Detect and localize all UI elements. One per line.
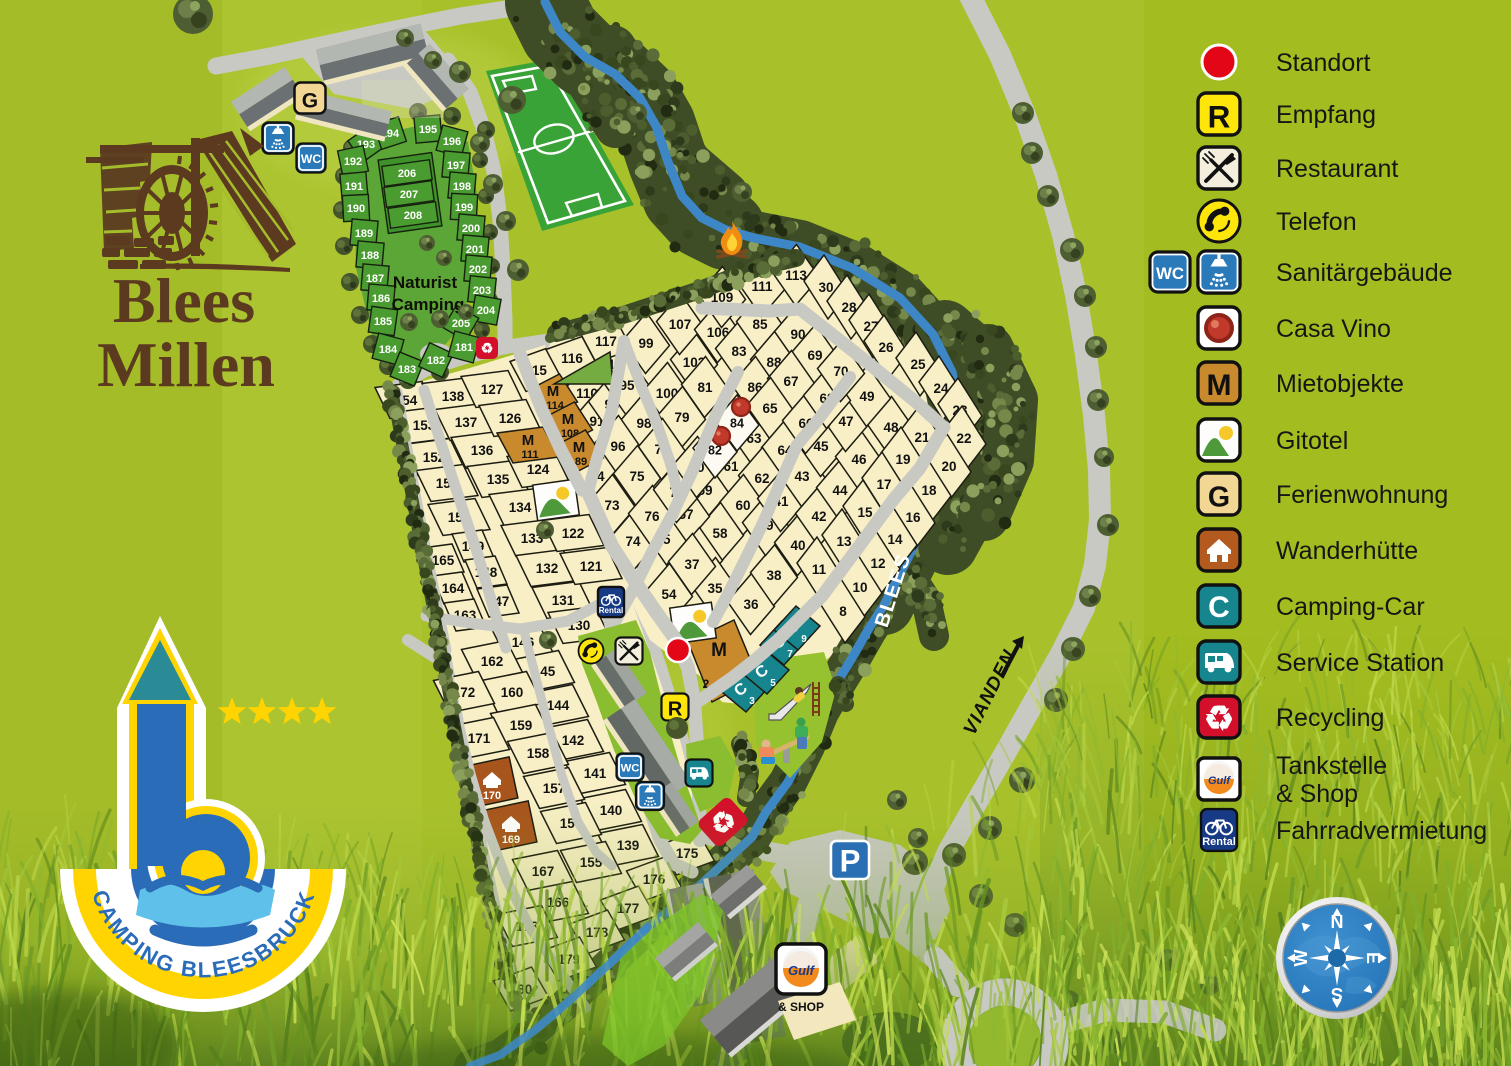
svg-text:111: 111	[751, 279, 773, 294]
svg-text:R: R	[1208, 98, 1231, 134]
svg-text:65: 65	[762, 401, 778, 416]
svg-text:43: 43	[794, 469, 810, 484]
svg-text:73: 73	[604, 498, 620, 513]
svg-text:E: E	[1363, 952, 1383, 964]
svg-text:Sanitärgebäude: Sanitärgebäude	[1276, 259, 1453, 287]
svg-text:3: 3	[749, 696, 755, 707]
svg-text:M: M	[562, 411, 575, 428]
svg-text:117: 117	[595, 334, 617, 349]
svg-text:WC: WC	[1156, 264, 1184, 283]
svg-text:159: 159	[510, 718, 533, 733]
svg-text:M: M	[1207, 369, 1232, 402]
svg-text:81: 81	[697, 380, 713, 395]
svg-text:♻: ♻	[1204, 700, 1234, 738]
svg-text:134: 134	[509, 500, 532, 515]
svg-text:47: 47	[838, 414, 853, 429]
svg-text:144: 144	[547, 698, 570, 713]
svg-text:62: 62	[754, 471, 769, 486]
svg-text:Standort: Standort	[1276, 49, 1371, 77]
svg-text:58: 58	[712, 526, 728, 541]
svg-text:198: 198	[453, 181, 471, 193]
svg-text:Blees: Blees	[113, 265, 255, 336]
svg-text:141: 141	[584, 766, 607, 781]
svg-text:Empfang: Empfang	[1276, 101, 1376, 129]
svg-text:G: G	[302, 89, 318, 112]
svg-text:74: 74	[625, 534, 641, 549]
svg-text:30: 30	[818, 280, 833, 295]
svg-text:137: 137	[455, 415, 478, 430]
svg-text:107: 107	[669, 317, 692, 332]
svg-text:35: 35	[707, 581, 723, 596]
svg-text:127: 127	[481, 382, 504, 397]
svg-text:Recycling: Recycling	[1276, 704, 1384, 732]
svg-text:199: 199	[455, 202, 473, 214]
svg-text:171: 171	[468, 731, 491, 746]
svg-text:Service Station: Service Station	[1276, 649, 1444, 677]
svg-text:131: 131	[552, 593, 575, 608]
svg-text:14: 14	[887, 532, 903, 547]
svg-text:12: 12	[870, 556, 885, 571]
svg-text:37: 37	[684, 557, 699, 572]
svg-text:196: 196	[443, 136, 461, 148]
svg-text:M: M	[522, 432, 535, 449]
svg-text:W: W	[1291, 950, 1311, 967]
svg-text:Gulf: Gulf	[1208, 775, 1231, 787]
svg-text:25: 25	[910, 357, 926, 372]
svg-text:15: 15	[857, 505, 873, 520]
svg-text:G: G	[1208, 482, 1230, 514]
svg-text:195: 195	[419, 124, 437, 136]
svg-text:P: P	[840, 843, 861, 878]
svg-text:Wanderhütte: Wanderhütte	[1276, 537, 1418, 565]
svg-text:136: 136	[471, 443, 494, 458]
svg-text:Fahrradvermietung: Fahrradvermietung	[1276, 817, 1487, 845]
svg-text:185: 185	[374, 316, 392, 328]
svg-text:83: 83	[731, 344, 747, 359]
svg-text:49: 49	[859, 389, 874, 404]
svg-text:111: 111	[521, 449, 538, 461]
svg-text:142: 142	[562, 733, 585, 748]
svg-text:181: 181	[455, 342, 473, 354]
svg-text:190: 190	[347, 203, 365, 215]
svg-text:158: 158	[527, 746, 550, 761]
svg-text:Telefon: Telefon	[1276, 208, 1357, 236]
svg-text:122: 122	[562, 526, 585, 541]
svg-text:197: 197	[447, 160, 465, 172]
svg-text:124: 124	[527, 462, 550, 477]
svg-text:126: 126	[499, 411, 522, 426]
svg-text:M: M	[573, 439, 586, 456]
svg-text:60: 60	[735, 498, 750, 513]
svg-text:192: 192	[344, 156, 362, 168]
svg-text:10: 10	[852, 580, 867, 595]
svg-text:18: 18	[921, 483, 937, 498]
svg-text:C: C	[1208, 591, 1230, 624]
svg-text:17: 17	[876, 477, 891, 492]
svg-text:121: 121	[580, 559, 603, 574]
svg-text:191: 191	[345, 181, 363, 193]
svg-text:20: 20	[941, 459, 956, 474]
svg-text:Rental: Rental	[599, 606, 623, 615]
svg-text:M: M	[547, 383, 560, 400]
svg-text:5: 5	[770, 678, 776, 689]
svg-text:Gulf: Gulf	[788, 963, 816, 978]
svg-text:Naturist: Naturist	[393, 273, 458, 292]
svg-text:79: 79	[674, 410, 689, 425]
svg-text:99: 99	[638, 336, 653, 351]
svg-text:♻: ♻	[481, 340, 494, 356]
svg-text:54: 54	[661, 587, 677, 602]
svg-text:Restaurant: Restaurant	[1276, 155, 1398, 183]
svg-text:76: 76	[644, 509, 660, 524]
svg-text:186: 186	[372, 293, 390, 305]
svg-text:19: 19	[895, 452, 910, 467]
svg-text:200: 200	[462, 223, 480, 235]
svg-text:26: 26	[878, 340, 894, 355]
svg-text:WC: WC	[301, 152, 321, 166]
svg-text:204: 204	[477, 305, 496, 317]
svg-text:40: 40	[790, 538, 805, 553]
svg-text:Mietobjekte: Mietobjekte	[1276, 370, 1404, 398]
svg-text:22: 22	[956, 431, 971, 446]
svg-text:7: 7	[787, 649, 793, 660]
svg-text:189: 189	[355, 228, 373, 240]
svg-text:9: 9	[801, 634, 807, 645]
svg-text:160: 160	[501, 685, 524, 700]
svg-text:Gitotel: Gitotel	[1276, 427, 1348, 455]
svg-text:188: 188	[361, 250, 379, 262]
svg-text:162: 162	[481, 654, 504, 669]
svg-text:85: 85	[752, 317, 768, 332]
svg-text:202: 202	[469, 264, 487, 276]
svg-text:Casa Vino: Casa Vino	[1276, 315, 1391, 343]
svg-text:36: 36	[743, 597, 759, 612]
svg-text:84: 84	[730, 417, 744, 431]
svg-text:96: 96	[610, 439, 626, 454]
svg-text:11: 11	[812, 562, 827, 577]
svg-text:208: 208	[404, 210, 422, 222]
svg-text:M: M	[711, 640, 727, 661]
svg-text:183: 183	[398, 364, 416, 376]
svg-text:164: 164	[442, 581, 465, 596]
svg-text:Camping-Car: Camping-Car	[1276, 593, 1425, 621]
svg-text:Tankstelle: Tankstelle	[1276, 752, 1387, 780]
svg-text:38: 38	[766, 568, 782, 583]
svg-text:& Shop: & Shop	[1276, 780, 1358, 808]
svg-text:13: 13	[836, 534, 852, 549]
svg-text:Camping: Camping	[392, 295, 465, 314]
svg-text:165: 165	[432, 553, 455, 568]
svg-text:Ferienwohnung: Ferienwohnung	[1276, 481, 1448, 509]
svg-text:46: 46	[851, 452, 867, 467]
svg-text:69: 69	[807, 348, 822, 363]
svg-text:& SHOP: & SHOP	[778, 1000, 824, 1014]
svg-text:207: 207	[400, 189, 418, 201]
svg-text:201: 201	[466, 244, 484, 256]
svg-text:Millen: Millen	[97, 329, 275, 400]
svg-text:132: 132	[536, 561, 559, 576]
svg-text:135: 135	[487, 472, 510, 487]
svg-text:75: 75	[629, 469, 645, 484]
svg-text:WC: WC	[621, 763, 640, 775]
svg-text:N: N	[1331, 912, 1344, 932]
svg-text:Rental: Rental	[1202, 836, 1236, 848]
svg-text:182: 182	[427, 355, 445, 367]
svg-text:44: 44	[832, 483, 848, 498]
svg-text:S: S	[1331, 984, 1343, 1004]
svg-text:138: 138	[442, 389, 465, 404]
svg-text:184: 184	[379, 344, 398, 356]
svg-text:16: 16	[905, 510, 921, 525]
svg-text:206: 206	[398, 168, 416, 180]
svg-text:67: 67	[783, 374, 798, 389]
svg-text:42: 42	[811, 509, 826, 524]
svg-text:8: 8	[839, 604, 847, 619]
svg-text:116: 116	[561, 351, 583, 366]
